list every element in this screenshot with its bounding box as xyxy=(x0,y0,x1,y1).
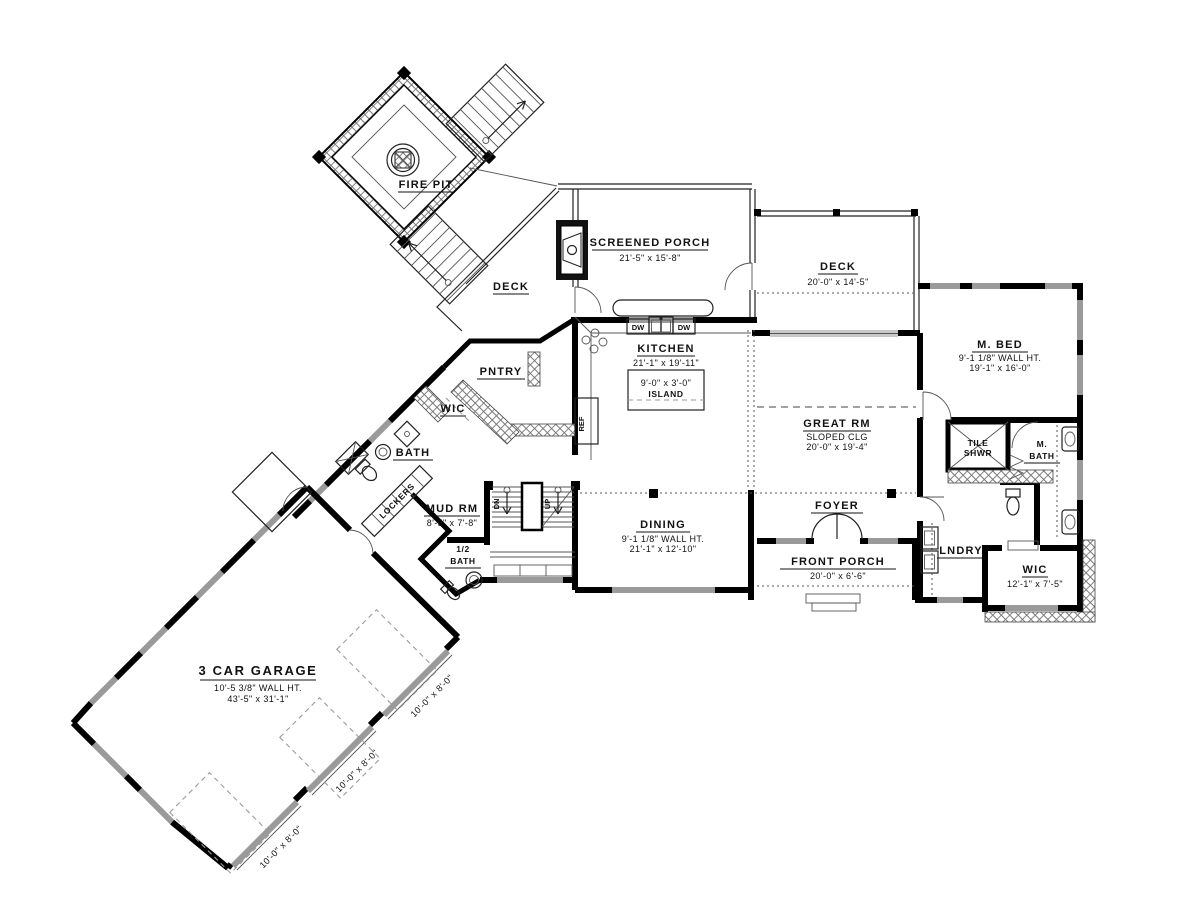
mbath-sink-1 xyxy=(1062,427,1079,451)
label-m-bath-1: M. xyxy=(1037,439,1048,449)
label-half-bath-2: BATH xyxy=(450,556,475,566)
master-door-arc xyxy=(923,392,951,420)
label-front-porch-dim: 20'-0" x 6'-6" xyxy=(810,571,866,581)
main-stairs xyxy=(490,483,575,576)
label-great-rm-dim: 20'-0" x 19'-4" xyxy=(806,442,867,452)
label-dining-note: 9'-1 1/8" WALL HT. xyxy=(622,534,704,544)
floor-plan-canvas: FIRE PIT DECK SCREENED PORCH 21'-5" x 15… xyxy=(0,0,1200,922)
label-up: UP xyxy=(543,499,552,509)
fire-pit-icon xyxy=(387,144,419,176)
labels: FIRE PIT DECK SCREENED PORCH 21'-5" x 15… xyxy=(199,179,1063,870)
label-wic: WIC xyxy=(441,403,466,415)
label-m-bed-dim: 19'-1" x 16'-0" xyxy=(969,363,1030,373)
label-front-porch: FRONT PORCH xyxy=(791,556,885,568)
upper-deck-walls xyxy=(752,209,920,337)
front-double-door xyxy=(812,514,862,539)
label-kitchen: KITCHEN xyxy=(637,343,694,355)
label-island: ISLAND xyxy=(648,389,683,399)
label-foyer: FOYER xyxy=(815,500,859,512)
label-great-rm: GREAT RM xyxy=(803,418,870,430)
mbath-sink-2 xyxy=(1062,510,1079,534)
label-screened-porch-dim: 21'-5" x 15'-8" xyxy=(619,253,680,263)
label-dw-right: DW xyxy=(678,323,691,332)
label-dw-left: DW xyxy=(632,323,645,332)
floor-plan-page: FIRE PIT DECK SCREENED PORCH 21'-5" x 15… xyxy=(0,0,1200,922)
label-lndry: LNDRY xyxy=(939,545,982,557)
label-screened-porch: SCREENED PORCH xyxy=(590,237,711,249)
label-m-wic: WIC xyxy=(1023,564,1048,576)
label-fire-pit: FIRE PIT xyxy=(399,179,454,191)
label-tile-shwr-2: SHWR xyxy=(964,448,992,458)
label-pntry: PNTRY xyxy=(480,366,523,378)
label-garage-dim: 43'-5" x 31'-1" xyxy=(227,694,288,704)
label-m-wic-dim: 12'-1" x 7'-5" xyxy=(1007,579,1063,589)
label-deck-right: DECK xyxy=(820,261,856,273)
label-mud-rm-dim: 8'-5" x 7'-8" xyxy=(427,518,478,528)
laundry-door-arc xyxy=(920,497,944,521)
bath-sink xyxy=(376,445,391,460)
label-dining-dim: 21'-1" x 12'-10" xyxy=(630,544,697,554)
label-kitchen-dim: 21'-1" x 19'-11" xyxy=(633,358,699,368)
laundry-appliances xyxy=(921,527,938,573)
label-deck-upper: DECK xyxy=(493,281,529,293)
label-m-bath-2: BATH xyxy=(1029,451,1054,461)
wing-fixtures xyxy=(336,398,482,603)
bath-shower xyxy=(394,421,419,446)
label-garage-note: 10'-5 3/8" WALL HT. xyxy=(214,683,302,693)
label-deck-right-dim: 20'-0" x 14'-5" xyxy=(807,277,868,287)
label-tile-shwr-1: TILE xyxy=(968,438,989,448)
label-mud-rm: MUD RM xyxy=(426,503,478,515)
label-garage: 3 CAR GARAGE xyxy=(199,663,318,678)
label-dining: DINING xyxy=(640,519,686,531)
fireplace xyxy=(556,220,588,280)
label-m-bed: M. BED xyxy=(977,339,1023,351)
label-great-rm-note: SLOPED CLG xyxy=(806,432,868,442)
fire-pit-deck xyxy=(312,66,496,249)
label-dn: DN xyxy=(492,499,501,510)
label-island-dim: 9'-0" x 3'-0" xyxy=(641,378,692,388)
mbath-toilet xyxy=(1006,489,1020,515)
label-half-bath-1: 1/2 xyxy=(456,544,470,554)
label-bath: BATH xyxy=(396,447,431,459)
label-m-bed-note: 9'-1 1/8" WALL HT. xyxy=(959,353,1041,363)
wic-shelf xyxy=(1008,541,1038,550)
label-ref: REF xyxy=(577,416,586,431)
